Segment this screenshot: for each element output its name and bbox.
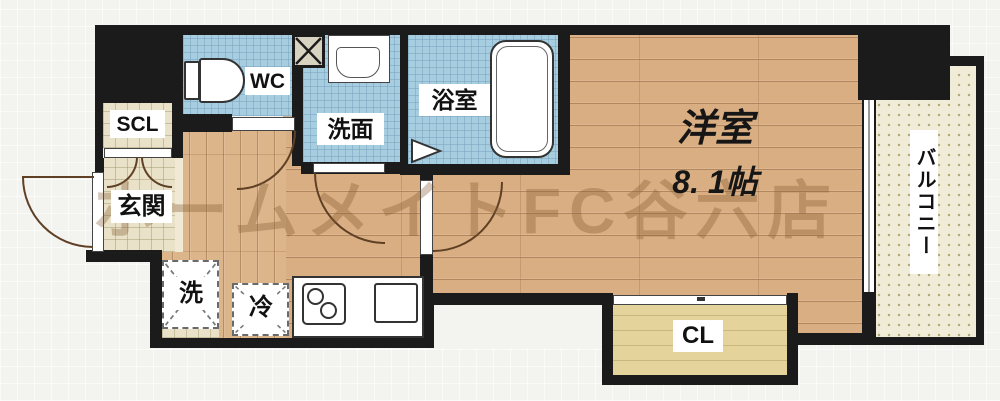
wall-room-bottom [420, 293, 605, 305]
stove-burner-2 [320, 302, 337, 319]
wall-top [95, 25, 868, 35]
washer-floor-strip [162, 329, 219, 338]
genkan-label: 玄関 [111, 190, 172, 223]
fridge-label: 冷 [245, 291, 277, 324]
bathtub-inner [496, 46, 548, 152]
wall-kitchen-bottom [150, 338, 434, 348]
wall-topleft-block [95, 25, 183, 103]
wall-closet-right [787, 293, 798, 385]
floor-plan: ホームメイトFC谷六店 WC SCL 玄関 洗面 浴室 洗 冷 CL バルコニー… [0, 0, 1000, 401]
wall-kitchen-left [150, 258, 162, 348]
wall-closet-left [602, 293, 613, 385]
kitchen-sink [374, 283, 418, 323]
outside-area [433, 305, 602, 348]
main-room-name: 洋室 [620, 110, 810, 148]
balcony-window [862, 100, 876, 292]
wall-bath-left [400, 25, 408, 175]
main-room-size: 8. 1帖 [615, 166, 815, 198]
wall-closet-bottom [602, 375, 798, 385]
scl-label: SCL [110, 110, 165, 138]
wash-basin-unit [328, 35, 390, 83]
closet-sliding-door [613, 295, 787, 305]
wash-basin-bowl [336, 47, 380, 78]
pipe-shaft [292, 34, 325, 68]
wall-wc-bottom [183, 114, 232, 132]
bath-label: 浴室 [419, 84, 490, 116]
wall-topright-block [858, 25, 950, 100]
wall-scl-right [172, 103, 183, 158]
entrance-door-arc [22, 177, 93, 248]
wc-door [232, 117, 295, 131]
wall-balcony-right [976, 56, 984, 345]
senmen-label: 洗面 [317, 113, 384, 145]
closet-door-tick [697, 297, 705, 301]
wall-bottom-right [798, 333, 862, 345]
wall-scl-left [95, 103, 103, 158]
balcony-label: バルコニー [910, 130, 938, 274]
washer-label: 洗 [175, 277, 207, 310]
toilet-bowl [199, 58, 245, 103]
closet-label: CL [673, 320, 723, 352]
wall-balcony-bottom [858, 337, 984, 345]
wc-label: WC [245, 67, 290, 95]
wall-bath-right [558, 25, 570, 175]
toilet-tank [184, 61, 200, 100]
stove-burner-1 [307, 288, 324, 305]
bathtub [490, 40, 554, 158]
wall-below-window [862, 292, 876, 341]
